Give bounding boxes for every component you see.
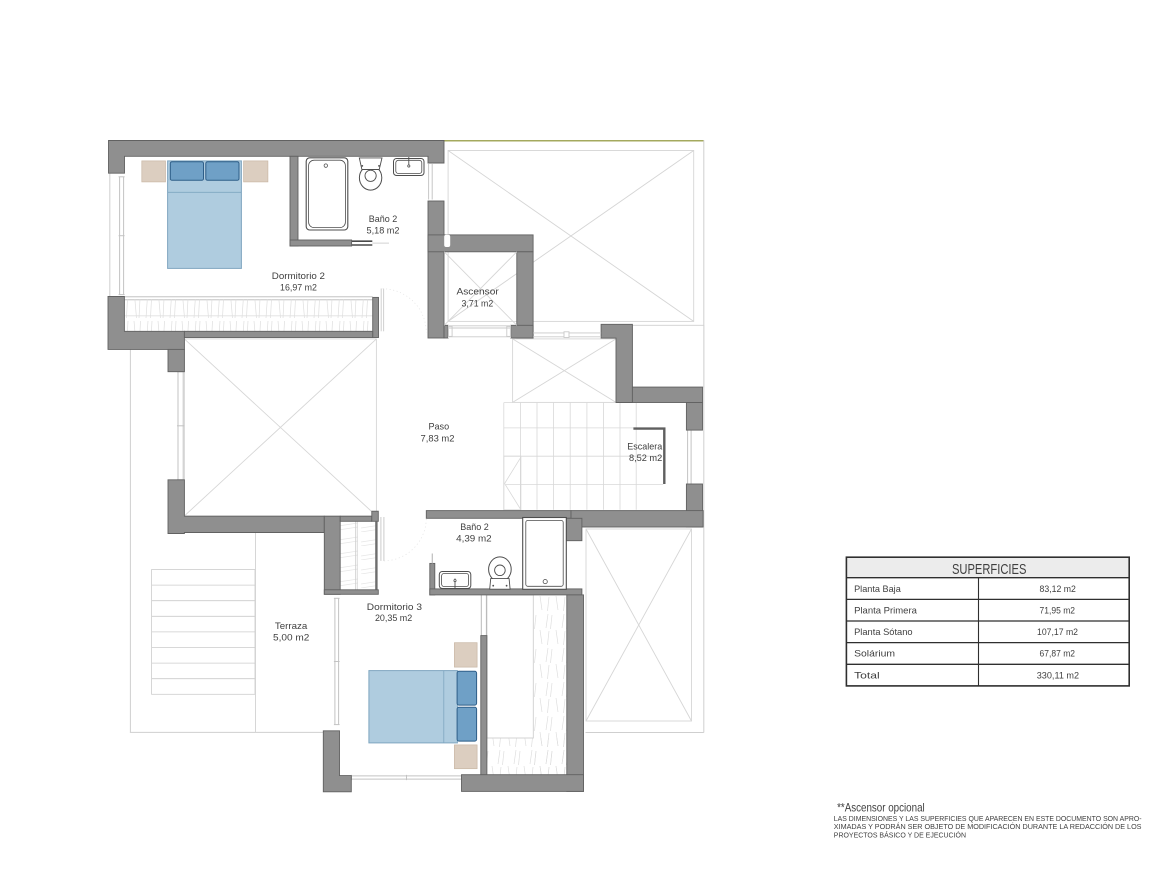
svg-text:Solárium: Solárium <box>854 649 895 660</box>
svg-text:107,17 m2: 107,17 m2 <box>1037 627 1078 638</box>
svg-text:83,12 m2: 83,12 m2 <box>1040 584 1076 595</box>
svg-text:71,95 m2: 71,95 m2 <box>1040 606 1076 617</box>
svg-text:PROYECTOS BÁSICO Y DE EJECUCIÓ: PROYECTOS BÁSICO Y DE EJECUCIÓN <box>834 831 966 840</box>
svg-text:Paso: Paso <box>428 421 449 432</box>
svg-text:Dormitorio 3: Dormitorio 3 <box>367 602 422 613</box>
svg-text:67,87 m2: 67,87 m2 <box>1040 649 1076 660</box>
svg-text:Dormitorio 2: Dormitorio 2 <box>272 271 325 282</box>
svg-text:LAS DIMENSIONES Y LAS SUPERFIC: LAS DIMENSIONES Y LAS SUPERFICIES QUE AP… <box>834 816 1142 823</box>
svg-text:Total: Total <box>854 670 880 681</box>
svg-text:Planta Sótano: Planta Sótano <box>854 627 913 638</box>
svg-text:Planta Baja: Planta Baja <box>854 584 901 595</box>
svg-text:Baño 2: Baño 2 <box>369 214 398 225</box>
svg-text:Planta Primera: Planta Primera <box>854 606 918 617</box>
svg-text:4,39 m2: 4,39 m2 <box>456 533 492 544</box>
svg-text:20,35 m2: 20,35 m2 <box>375 613 412 624</box>
svg-text:Ascensor: Ascensor <box>457 286 499 297</box>
svg-text:5,18 m2: 5,18 m2 <box>367 225 400 236</box>
svg-text:5,00 m2: 5,00 m2 <box>273 633 309 644</box>
svg-text:8,52 m2: 8,52 m2 <box>629 453 662 464</box>
svg-text:3,71 m2: 3,71 m2 <box>462 298 494 309</box>
svg-text:SUPERFICIES: SUPERFICIES <box>952 561 1027 578</box>
svg-text:Terraza: Terraza <box>275 621 308 632</box>
svg-text:330,11 m2: 330,11 m2 <box>1037 670 1079 681</box>
svg-text:**Ascensor opcional: **Ascensor opcional <box>837 801 925 815</box>
svg-text:Baño 2: Baño 2 <box>460 522 489 533</box>
svg-text:XIMADAS Y PODRÁN SER OBJETO DE: XIMADAS Y PODRÁN SER OBJETO DE MODIFICAC… <box>834 822 1142 831</box>
svg-text:7,83 m2: 7,83 m2 <box>421 433 455 444</box>
svg-text:Escalera: Escalera <box>627 441 663 452</box>
svg-text:16,97 m2: 16,97 m2 <box>280 282 317 293</box>
